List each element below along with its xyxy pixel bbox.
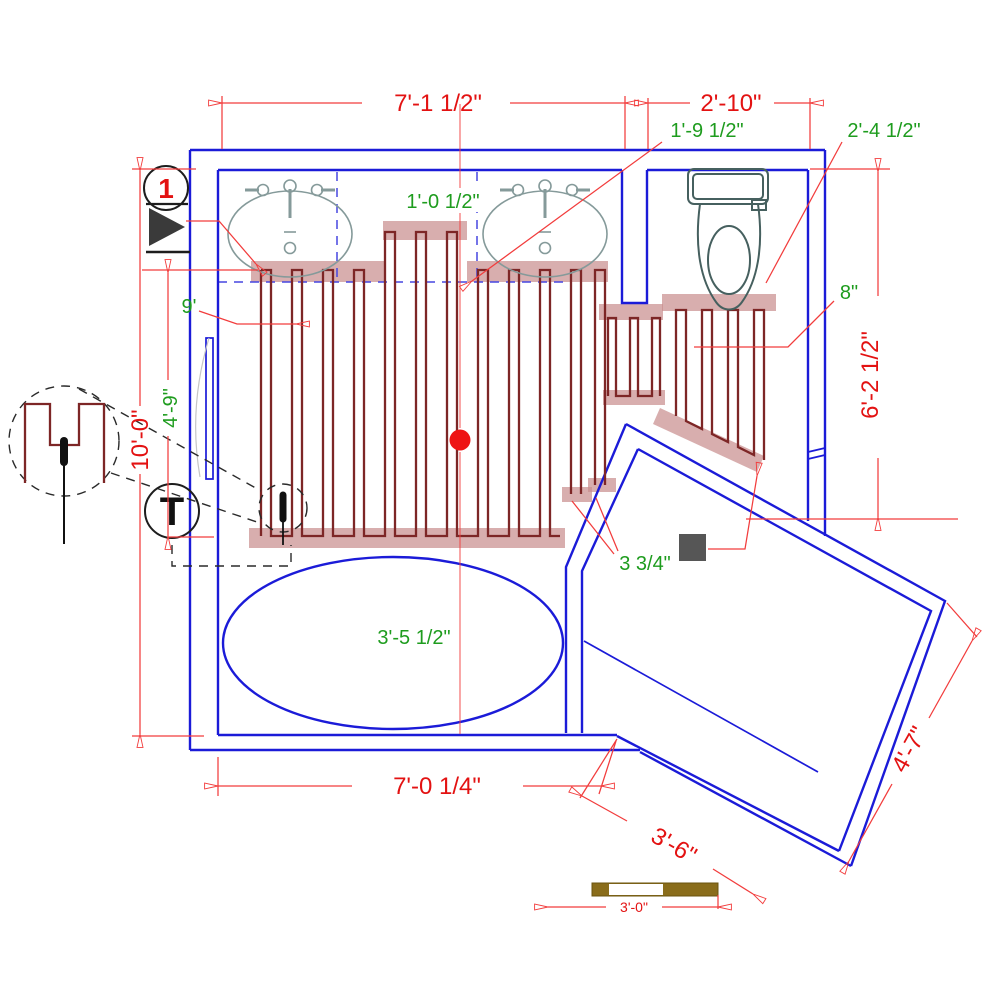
toilet xyxy=(688,169,768,310)
thermostat-icon: T xyxy=(160,490,184,534)
dim-label: 1'-0 1/2" xyxy=(406,191,479,213)
dim-vanity-offset: 1'-9 1/2" xyxy=(472,120,744,281)
dim-wall-gap: 8" xyxy=(694,282,858,347)
dim-loop-start: 9' xyxy=(182,296,296,324)
dim-label: 9' xyxy=(182,296,197,318)
shower-curb xyxy=(584,641,818,772)
detail-number-label: 1 xyxy=(158,173,174,204)
scale-bar: 3'-0" xyxy=(548,883,718,915)
dim-label: 10'-0" xyxy=(127,409,154,470)
dim-label: 8" xyxy=(840,282,858,304)
dim-label: 4'-7" xyxy=(886,722,933,777)
heating-loop-passage xyxy=(608,318,660,396)
dim-label: 7'-1 1/2" xyxy=(394,90,482,117)
loop-start-leader xyxy=(186,221,256,264)
dim-label: 3'-6" xyxy=(646,822,701,869)
detail-bubble-1: 1 xyxy=(144,166,190,252)
dim-loop-offset: 1'-0 1/2" xyxy=(396,188,491,213)
dim-label: 2'-10" xyxy=(700,90,761,117)
dim-label: 3'-5 1/2" xyxy=(377,627,450,649)
entry-door xyxy=(196,338,213,479)
section-marker-icon xyxy=(149,208,185,246)
dim-shower-depth: 4'-7" xyxy=(849,603,977,861)
dim-alcove-height: 6'-2 1/2" xyxy=(746,169,958,519)
dim-toilet-center-offset: 2'-4 1/2" xyxy=(766,120,921,283)
dim-label: 7'-0 1/4" xyxy=(393,773,481,800)
dim-label: 4'-9" xyxy=(160,388,182,428)
dim-tub-centerline: 3'-5 1/2" xyxy=(374,624,454,649)
floor-plan-canvas: T 1 7'-1 1/2" 2'-10" 1'-9 1/2" 2'-4 1/2"… xyxy=(0,0,1000,1000)
scale-label: 3'-0" xyxy=(620,899,648,915)
dim-label: 3 3/4" xyxy=(619,553,671,575)
floor-plan-page: T 1 7'-1 1/2" 2'-10" 1'-9 1/2" 2'-4 1/2"… xyxy=(0,0,1000,1000)
dim-top-width: 7'-1 1/2" xyxy=(222,90,625,149)
dim-pipe-spacing: 3 3/4" xyxy=(572,498,671,575)
dim-label: 1'-9 1/2" xyxy=(670,120,743,142)
dim-label: 6'-2 1/2" xyxy=(857,331,884,419)
pipe-detail-bubble xyxy=(9,386,119,544)
shower-walls xyxy=(566,424,945,866)
floor-sensor-box xyxy=(679,476,757,561)
dim-label: 2'-4 1/2" xyxy=(847,120,920,142)
loop-center-dot xyxy=(450,430,471,451)
